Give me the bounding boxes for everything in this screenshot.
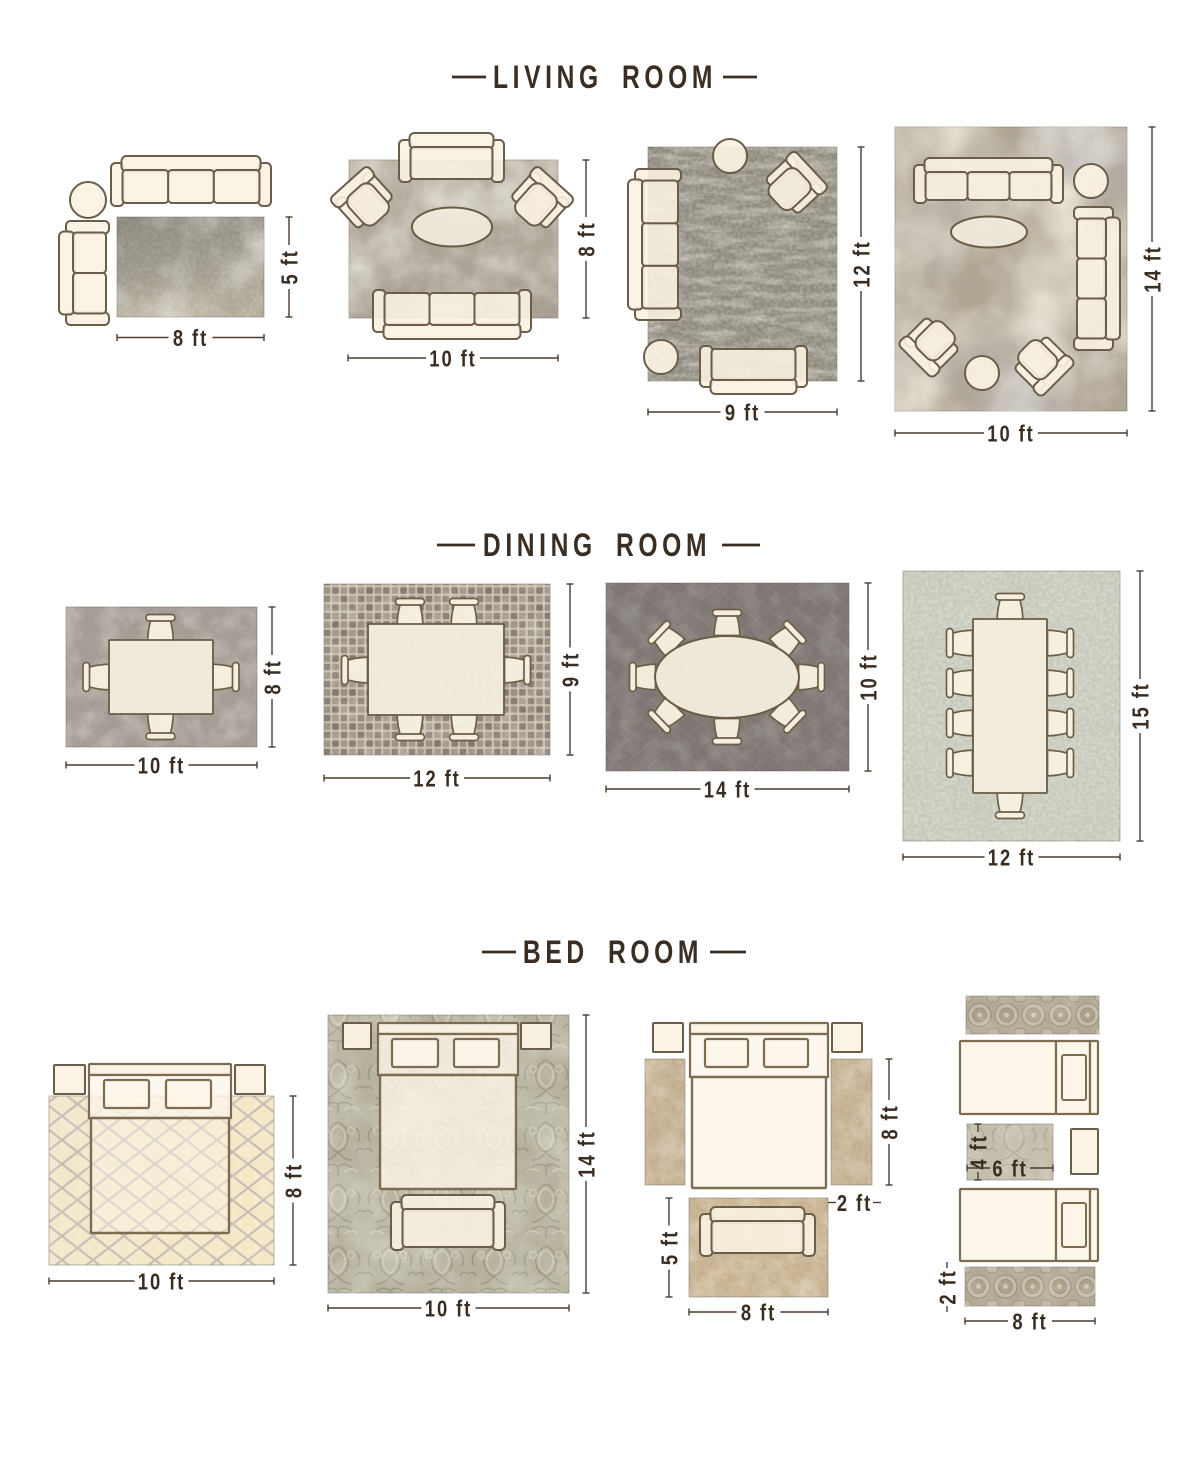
svg-text:2 ft: 2 ft bbox=[837, 1191, 872, 1216]
svg-text:6 ft: 6 ft bbox=[992, 1157, 1027, 1182]
svg-text:10 ft: 10 ft bbox=[857, 653, 882, 700]
svg-text:8 ft: 8 ft bbox=[1012, 1310, 1047, 1335]
svg-text:5 ft: 5 ft bbox=[658, 1230, 683, 1265]
svg-text:9 ft: 9 ft bbox=[559, 652, 584, 687]
svg-text:9 ft: 9 ft bbox=[725, 401, 760, 426]
svg-text:15 ft: 15 ft bbox=[1129, 682, 1154, 729]
svg-text:BED ROOM: BED ROOM bbox=[523, 935, 703, 971]
svg-text:14 ft: 14 ft bbox=[1141, 245, 1166, 292]
svg-text:10 ft: 10 ft bbox=[138, 1270, 185, 1295]
svg-text:14 ft: 14 ft bbox=[704, 778, 751, 803]
svg-text:2 ft: 2 ft bbox=[936, 1269, 961, 1304]
svg-text:LIVING ROOM: LIVING ROOM bbox=[493, 60, 717, 96]
svg-text:DINING ROOM: DINING ROOM bbox=[483, 528, 711, 564]
svg-text:12 ft: 12 ft bbox=[850, 240, 875, 287]
svg-text:4 ft: 4 ft bbox=[967, 1134, 992, 1169]
svg-text:10 ft: 10 ft bbox=[425, 1297, 472, 1322]
svg-text:10 ft: 10 ft bbox=[138, 754, 185, 779]
svg-text:5 ft: 5 ft bbox=[278, 249, 303, 284]
svg-text:8 ft: 8 ft bbox=[173, 326, 208, 351]
svg-text:10 ft: 10 ft bbox=[987, 422, 1034, 447]
svg-text:14 ft: 14 ft bbox=[575, 1130, 600, 1177]
svg-text:8 ft: 8 ft bbox=[741, 1301, 776, 1326]
svg-text:12 ft: 12 ft bbox=[988, 846, 1035, 871]
svg-text:12 ft: 12 ft bbox=[413, 767, 460, 792]
svg-text:8 ft: 8 ft bbox=[878, 1104, 903, 1139]
svg-text:8 ft: 8 ft bbox=[282, 1163, 307, 1198]
svg-text:8 ft: 8 ft bbox=[575, 221, 600, 256]
svg-text:8 ft: 8 ft bbox=[261, 659, 286, 694]
svg-text:10 ft: 10 ft bbox=[429, 347, 476, 372]
